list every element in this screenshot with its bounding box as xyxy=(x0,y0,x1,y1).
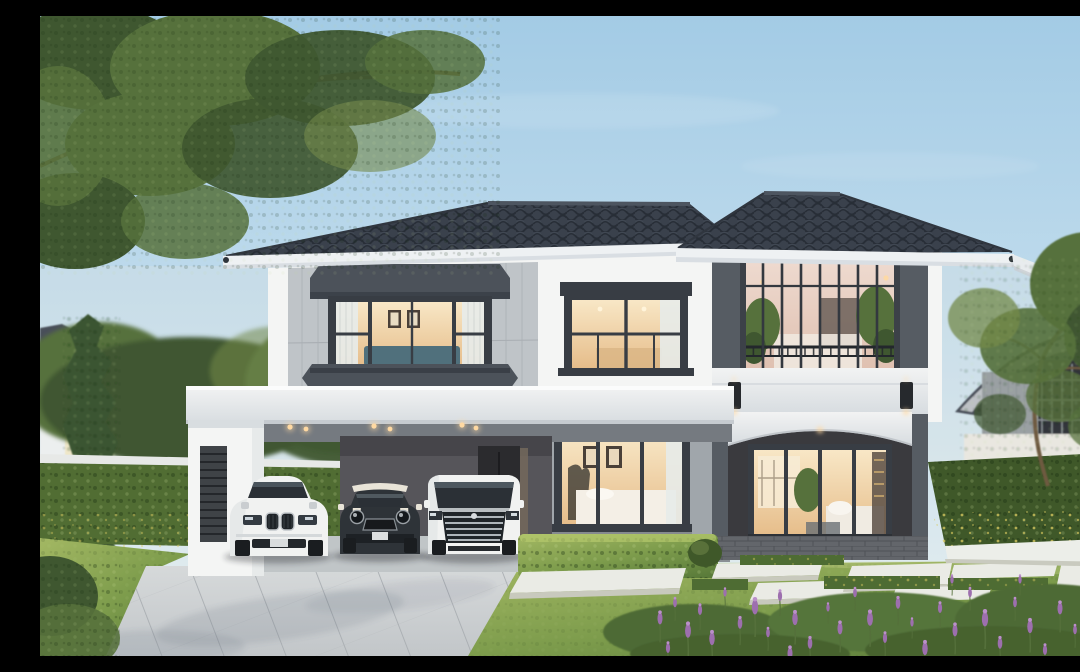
van-grille xyxy=(442,512,506,543)
upper-middle-window xyxy=(558,282,694,376)
paved-driveway xyxy=(75,566,540,656)
tree-right xyxy=(948,232,1080,486)
white-luxury-van xyxy=(422,475,526,564)
glass-balcony-tower xyxy=(712,244,928,560)
house-render: Photoreal rendering of a modern two-stor… xyxy=(40,16,1080,656)
scene-canvas xyxy=(40,16,1080,656)
foreground-bush-bottom-left xyxy=(40,556,120,656)
carport-roof-slab xyxy=(186,386,734,424)
louver-vent-panel xyxy=(200,446,227,542)
walkway-slab xyxy=(509,568,686,599)
bay-window-upper-left xyxy=(302,264,518,392)
overhanging-tree-branch xyxy=(40,16,500,276)
living-room-glass-doors xyxy=(748,444,892,540)
